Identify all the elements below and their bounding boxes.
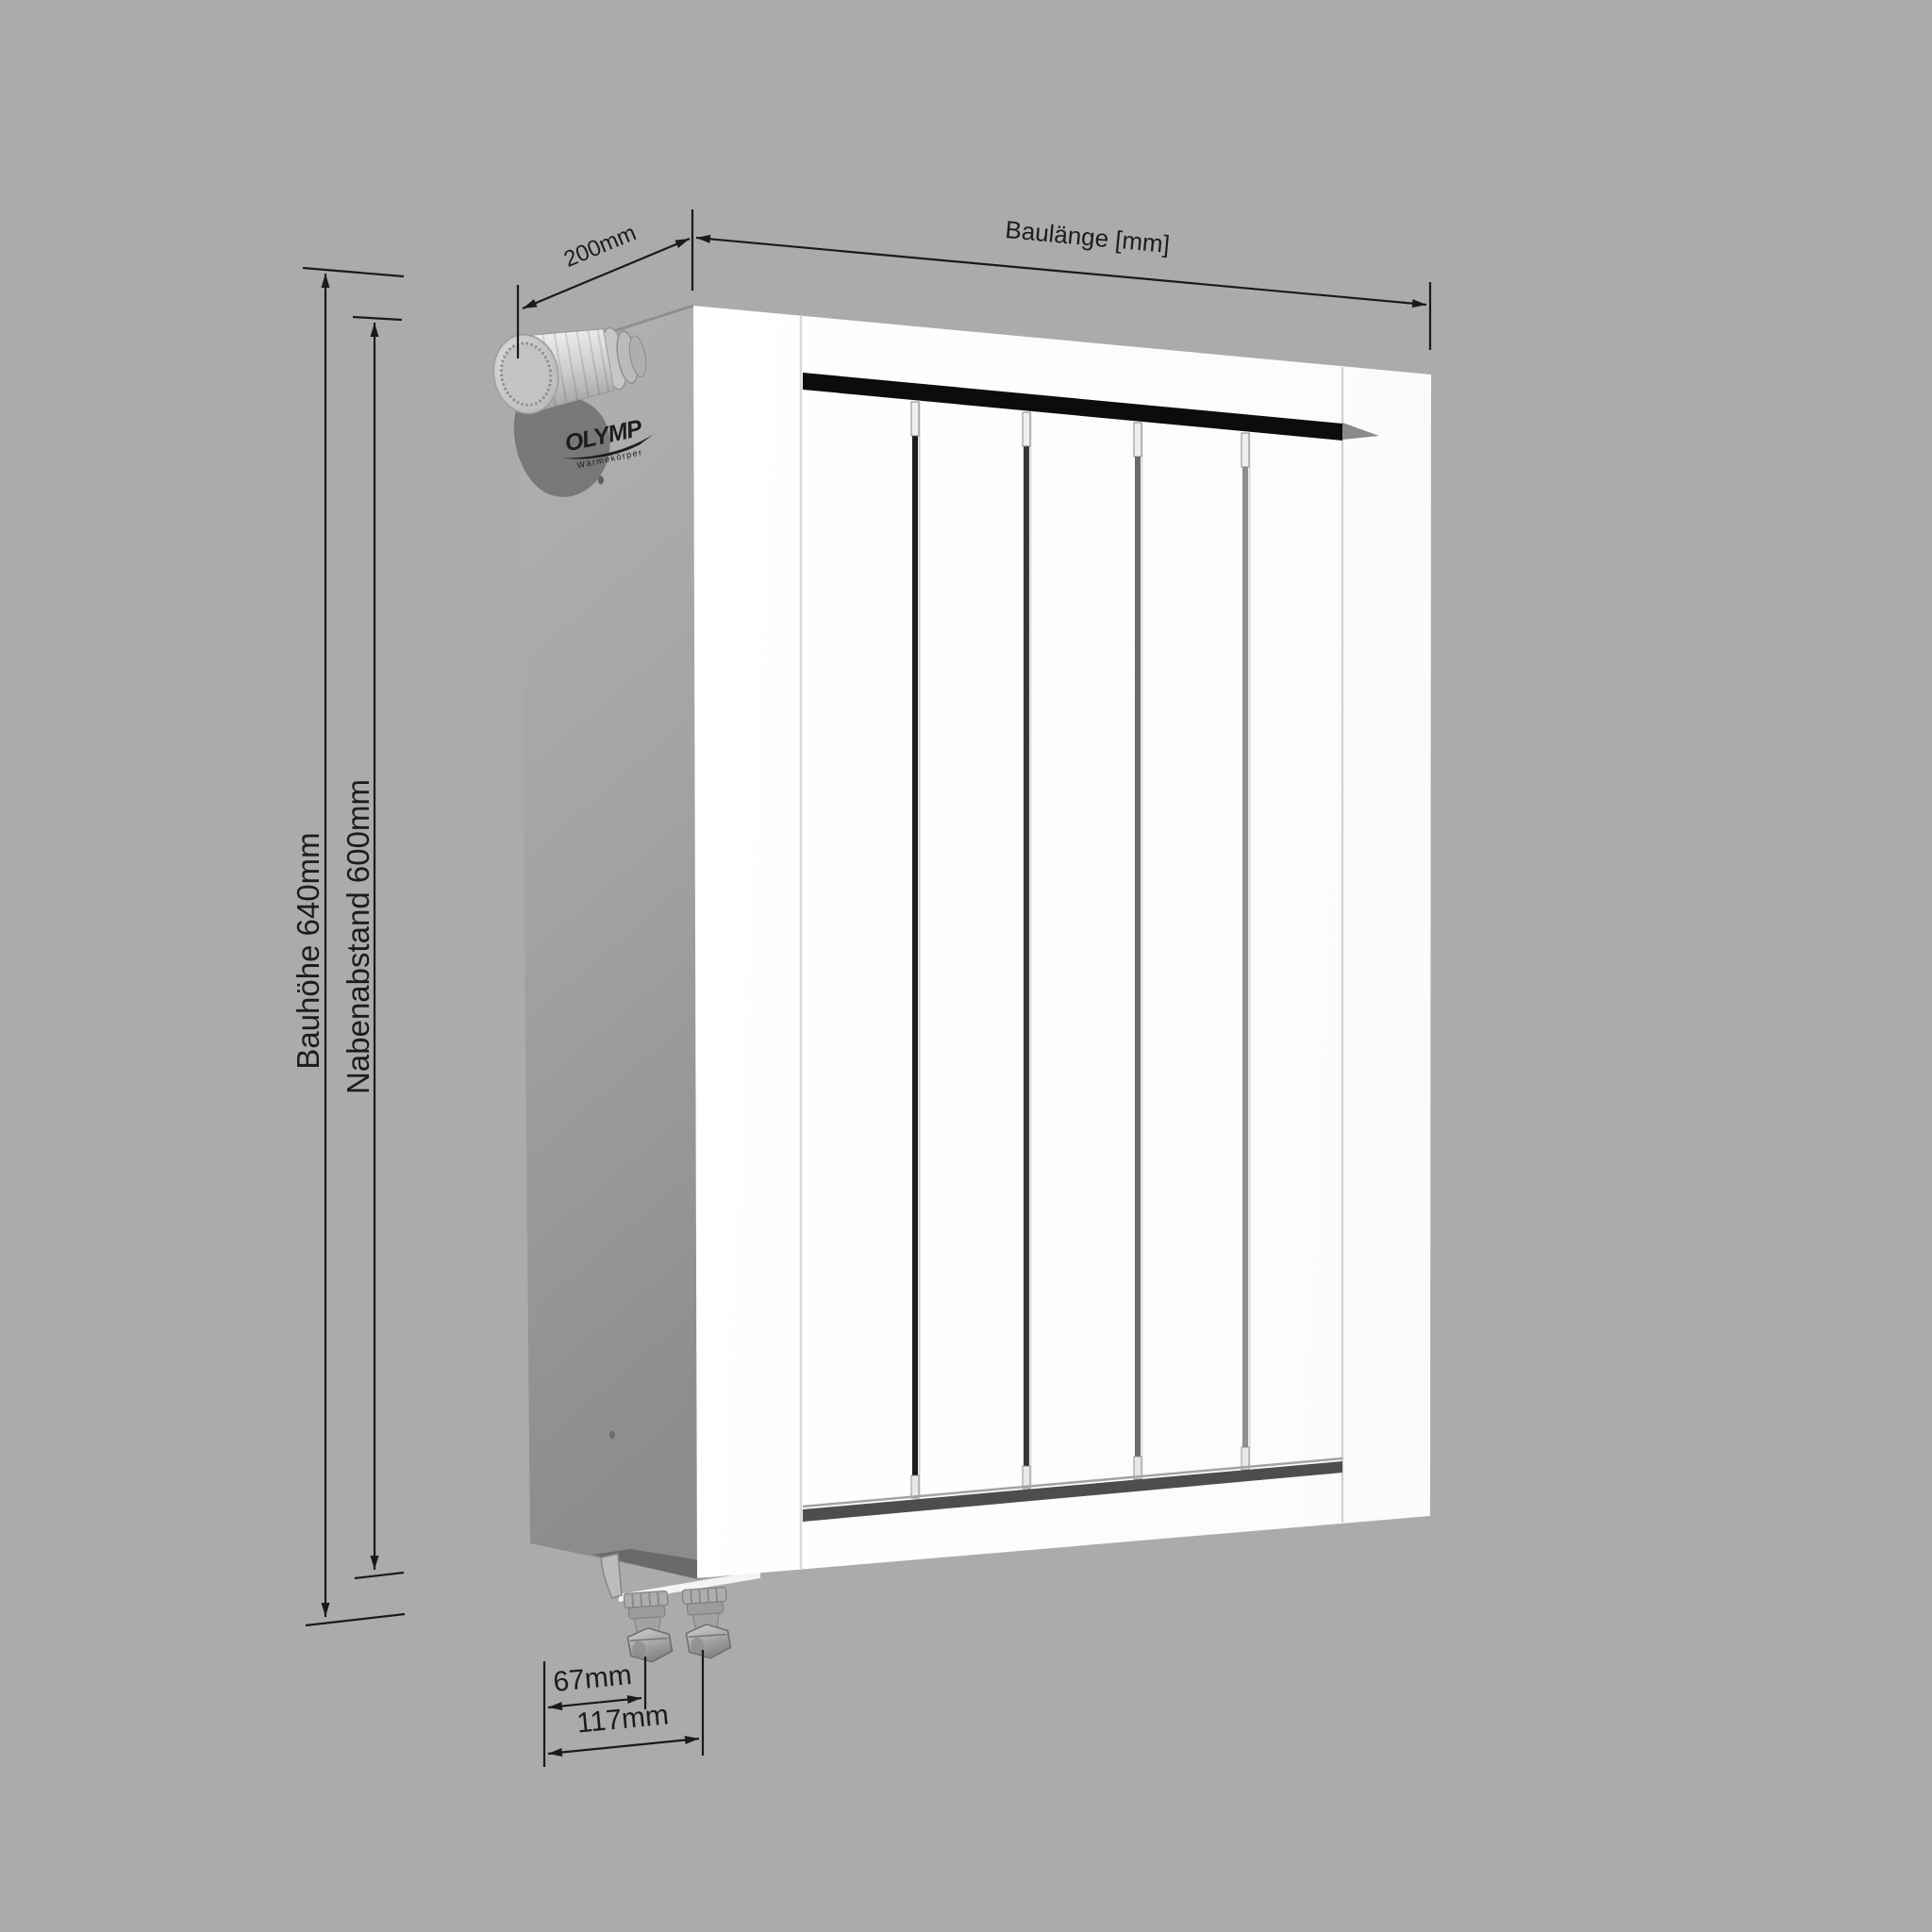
radiator-front-panel — [693, 306, 1431, 1578]
screw-dot — [598, 476, 604, 485]
fin-tab — [1134, 423, 1141, 457]
hub-distance-dimension-label: Nabenabstand 600mm — [341, 779, 375, 1094]
fin-tab — [1241, 433, 1249, 467]
height-dimension-label: Bauhöhe 640mm — [291, 832, 325, 1069]
fin-tab — [911, 402, 919, 436]
radiator: OLYMP Wärmekörper — [488, 306, 1431, 1663]
radiator-dimension-drawing: OLYMP Wärmekörper — [0, 0, 1932, 1932]
fin-tab — [911, 1475, 919, 1498]
fin-tab — [1023, 412, 1030, 446]
screw-dot — [609, 1431, 615, 1440]
radiator-side-panel: OLYMP Wärmekörper — [514, 306, 697, 1578]
